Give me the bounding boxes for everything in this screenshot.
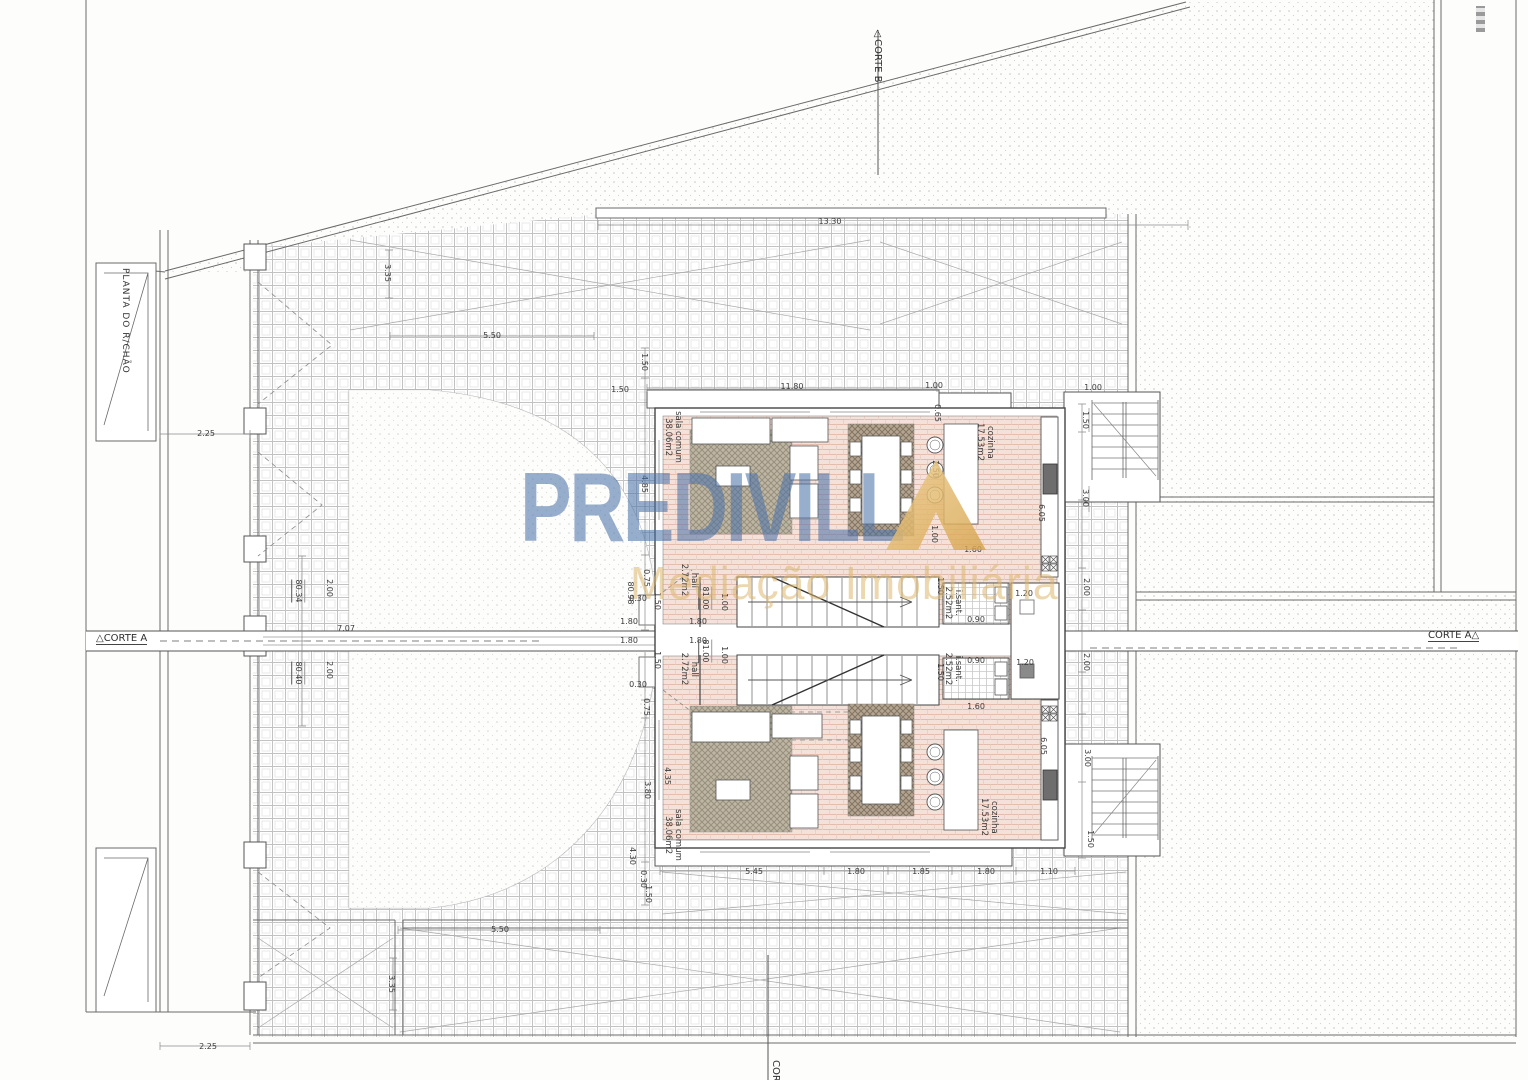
- section-triangle-icon: △: [96, 633, 104, 644]
- corner-stamp: [1476, 6, 1485, 32]
- section-label-text: CORTE A: [1428, 630, 1472, 641]
- exterior-stairs-bottom: [1064, 744, 1160, 856]
- floor-plan-drawing: [0, 0, 1528, 1080]
- section-label-text: CORTE B: [872, 39, 883, 83]
- section-marker-corte-a-left: △CORTE A: [96, 633, 147, 645]
- section-label-text: CORTE B: [770, 1060, 781, 1080]
- section-marker-corte-b-top: △CORTE B: [872, 28, 883, 83]
- section-label-text: CORTE A: [104, 633, 148, 644]
- plan-title: PLANTA DO R/CHÃO: [120, 268, 130, 374]
- section-marker-corte-b-bottom: CORTE B: [770, 1060, 781, 1080]
- section-marker-corte-a-right: CORTE A△: [1428, 630, 1479, 642]
- exterior-stairs-top: [1064, 392, 1160, 502]
- floor-plan-sheet: 13.303.355.502.251.501.5011.801.001.000.…: [0, 0, 1528, 1080]
- section-triangle-icon: △: [872, 28, 883, 39]
- section-triangle-icon: △: [1472, 630, 1480, 641]
